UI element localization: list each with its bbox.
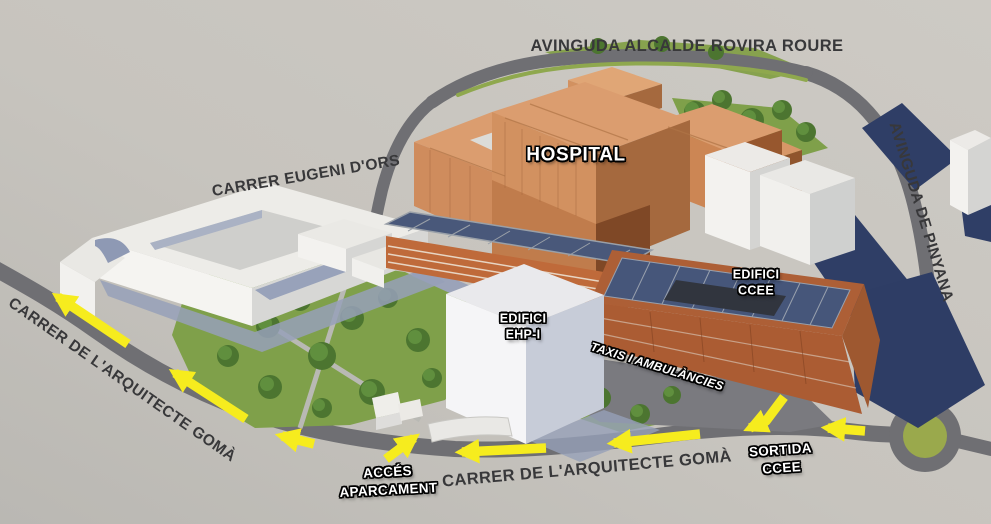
building-label-ccee-line2: CCEE bbox=[733, 283, 780, 299]
flow-arrow-south-2 bbox=[462, 448, 546, 452]
building-label-ccee-line1: EDIFICI bbox=[733, 267, 780, 283]
campus-map: AVINGUDA ALCALDE ROVIRA ROURE CARRER EUG… bbox=[0, 0, 991, 524]
building-label-ehp-line1: EDIFICI bbox=[500, 311, 547, 327]
route-label-sortida-ccee: SORTIDA CCEE bbox=[748, 439, 813, 478]
building-label-ehp: EDIFICI EHP-I bbox=[500, 311, 547, 342]
flow-arrow-south-4 bbox=[828, 428, 865, 431]
building-label-ehp-line2: EHP-I bbox=[500, 327, 547, 343]
building-label-ccee: EDIFICI CCEE bbox=[733, 267, 780, 298]
route-label-acces-aparcament: ACCÉS APARCAMENT bbox=[338, 461, 438, 501]
building-label-hospital: HOSPITAL bbox=[526, 146, 625, 167]
street-label-rovira-roure: AVINGUDA ALCALDE ROVIRA ROURE bbox=[531, 37, 844, 55]
map-illustration bbox=[0, 0, 991, 524]
